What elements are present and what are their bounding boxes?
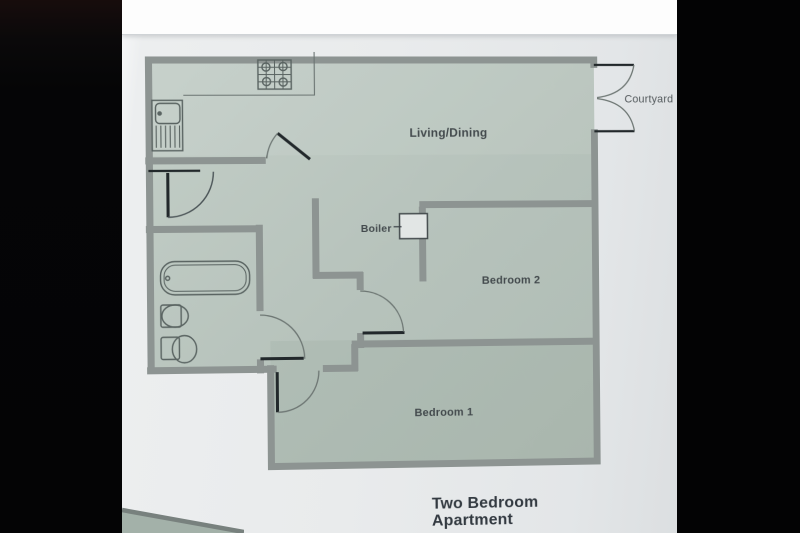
right-black-bar [677,0,800,533]
floor-plan-wrap: Living/Dining Bedroom 2 Bedroom 1 Boiler… [136,40,697,533]
left-black-bar [0,0,122,533]
caption-line-1: Two Bedroom [432,494,539,513]
plan-caption: Two Bedroom Apartment [432,494,539,530]
paper-top-highlight [122,0,677,35]
room-label-bedroom-2: Bedroom 2 [482,274,540,286]
floor-shadow [270,337,597,466]
floor-highlight [148,60,594,156]
room-label-bedroom-1: Bedroom 1 [415,406,474,419]
room-label-living-dining: Living/Dining [409,126,487,140]
caption-line-2: Apartment [432,511,539,530]
floor-plan: Living/Dining Bedroom 2 Bedroom 1 Boiler… [136,40,697,494]
boiler-label: Boiler [361,223,392,235]
courtyard-label: Courtyard [624,94,673,106]
floor-plan-photo: Living/Dining Bedroom 2 Bedroom 1 Boiler… [0,0,800,533]
